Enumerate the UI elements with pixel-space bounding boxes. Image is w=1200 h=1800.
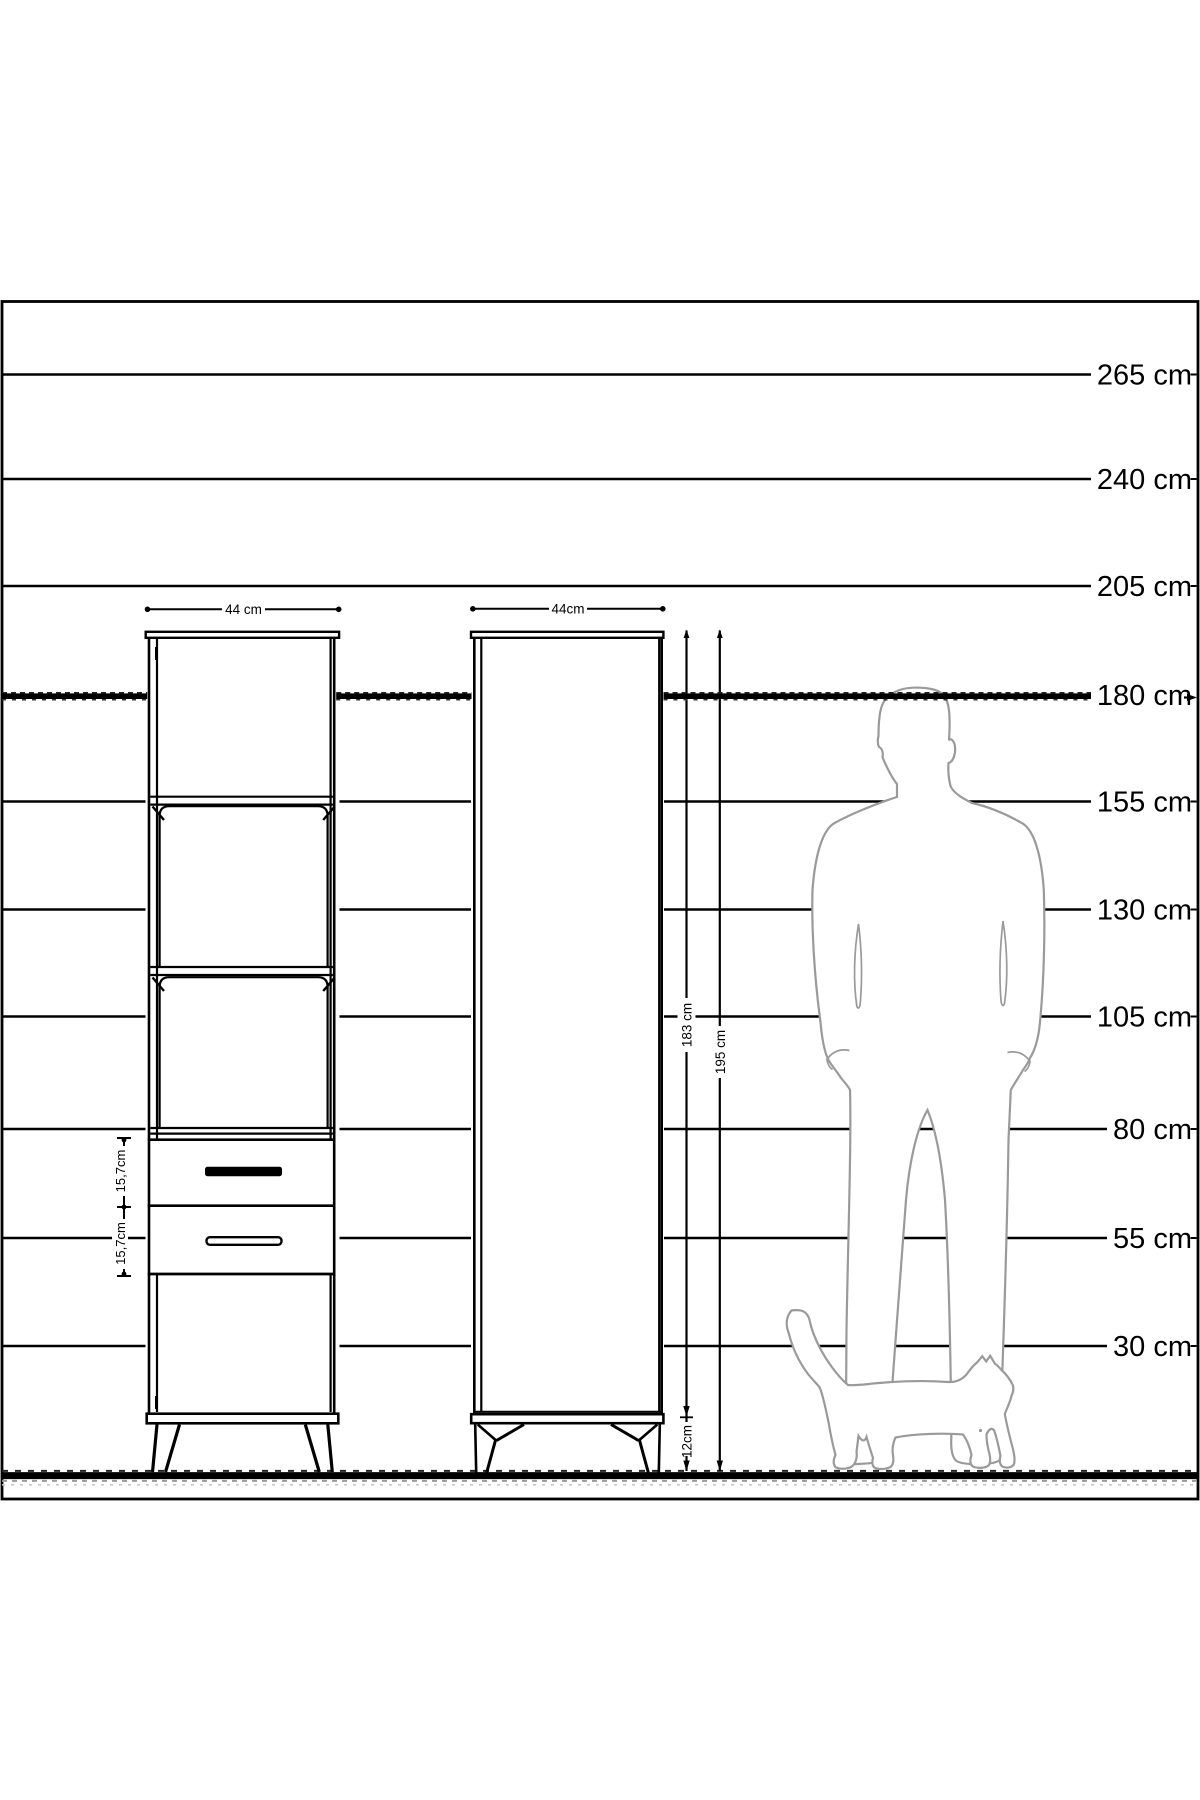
svg-text:183 cm: 183 cm <box>680 1003 695 1047</box>
svg-text:265 cm: 265 cm <box>1097 360 1192 392</box>
svg-text:130 cm: 130 cm <box>1097 895 1192 927</box>
svg-text:12cm: 12cm <box>680 1425 695 1458</box>
svg-text:15,7cm: 15,7cm <box>113 1150 128 1193</box>
svg-text:155 cm: 155 cm <box>1097 787 1192 819</box>
svg-text:30 cm: 30 cm <box>1113 1331 1192 1363</box>
svg-text:205 cm: 205 cm <box>1097 571 1192 603</box>
svg-text:44cm: 44cm <box>551 602 584 617</box>
svg-text:44 cm: 44 cm <box>225 602 262 617</box>
svg-text:180 cm: 180 cm <box>1097 680 1192 712</box>
svg-text:105 cm: 105 cm <box>1097 1002 1192 1034</box>
svg-text:15,7cm: 15,7cm <box>113 1222 128 1265</box>
svg-text:240 cm: 240 cm <box>1097 464 1192 496</box>
svg-text:55 cm: 55 cm <box>1113 1223 1192 1255</box>
svg-text:80 cm: 80 cm <box>1113 1114 1192 1146</box>
svg-text:195 cm: 195 cm <box>713 1030 728 1074</box>
